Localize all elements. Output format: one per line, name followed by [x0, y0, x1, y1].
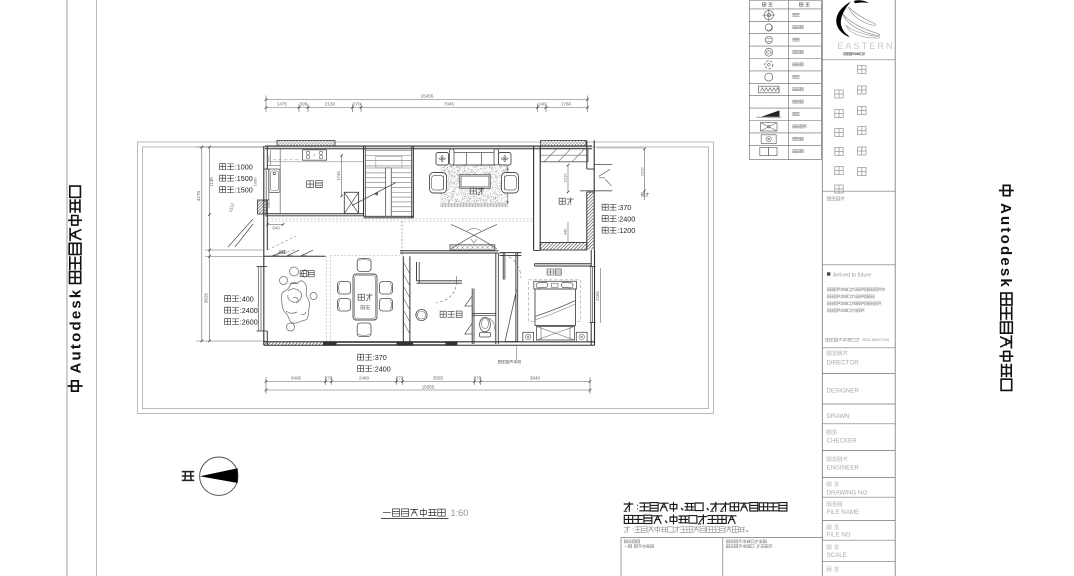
svg-text:370: 370	[396, 376, 404, 381]
svg-text:ENGINEER: ENGINEER	[827, 465, 860, 472]
svg-text:DRAWN: DRAWN	[827, 413, 850, 420]
svg-text:DIRECTOR: DIRECTOR	[827, 360, 860, 367]
svg-text:3495: 3495	[291, 376, 302, 381]
svg-text:3635: 3635	[204, 292, 209, 303]
svg-text:2460: 2460	[359, 376, 370, 381]
svg-text:1000: 1000	[253, 177, 258, 187]
svg-text:Autodesk: Autodesk	[68, 288, 85, 374]
svg-text:270: 270	[353, 102, 361, 107]
svg-text:395: 395	[300, 102, 308, 107]
svg-text::1500: :1500	[235, 185, 253, 194]
svg-text:240: 240	[538, 102, 546, 107]
svg-text:Autodesk: Autodesk	[997, 203, 1014, 289]
svg-text:7045: 7045	[444, 102, 455, 107]
svg-text:3565: 3565	[433, 376, 444, 381]
svg-text:3840: 3840	[530, 376, 541, 381]
svg-text:0532-85897318: 0532-85897318	[862, 337, 889, 342]
svg-text:640: 640	[272, 226, 280, 231]
svg-text::2400: :2400	[373, 364, 391, 373]
svg-text:370: 370	[474, 376, 482, 381]
svg-text:1745: 1745	[336, 171, 341, 181]
svg-text:1130: 1130	[209, 177, 214, 187]
svg-text:CHECKER: CHECKER	[827, 438, 858, 445]
svg-text::400: :400	[240, 294, 254, 303]
svg-text:DESIGNER: DESIGNER	[827, 388, 860, 395]
svg-text:1:60: 1:60	[451, 508, 469, 518]
svg-text:2155: 2155	[595, 291, 600, 301]
svg-text:1475: 1475	[277, 102, 288, 107]
svg-text:DRAWING NO: DRAWING NO	[827, 490, 868, 497]
svg-text:645: 645	[266, 154, 271, 161]
svg-text:2130: 2130	[325, 102, 336, 107]
svg-text::1500: :1500	[235, 174, 253, 183]
svg-text::1200: :1200	[617, 226, 635, 235]
svg-text:15455: 15455	[421, 94, 434, 99]
svg-text:FILE NO: FILE NO	[827, 532, 851, 539]
svg-text:1510: 1510	[563, 173, 568, 183]
svg-text::370: :370	[617, 203, 631, 212]
svg-text:4270: 4270	[196, 190, 201, 201]
svg-text:FILE NAME: FILE NAME	[827, 509, 860, 516]
svg-text::1000: :1000	[235, 162, 253, 171]
svg-text:240: 240	[266, 201, 271, 208]
svg-text:440: 440	[563, 228, 568, 235]
svg-text::2600: :2600	[240, 317, 258, 326]
svg-text:1760: 1760	[561, 102, 572, 107]
svg-text::370: :370	[373, 353, 387, 362]
svg-text:EASTERN: EASTERN	[837, 41, 894, 51]
svg-text::2400: :2400	[617, 214, 635, 223]
svg-text:SCALE: SCALE	[827, 552, 847, 559]
svg-text:15555: 15555	[422, 384, 435, 389]
svg-text:2370: 2370	[640, 167, 645, 177]
svg-text:370: 370	[325, 376, 333, 381]
svg-text:Arrived to future: Arrived to future	[833, 273, 871, 279]
svg-text::2400: :2400	[240, 306, 258, 315]
